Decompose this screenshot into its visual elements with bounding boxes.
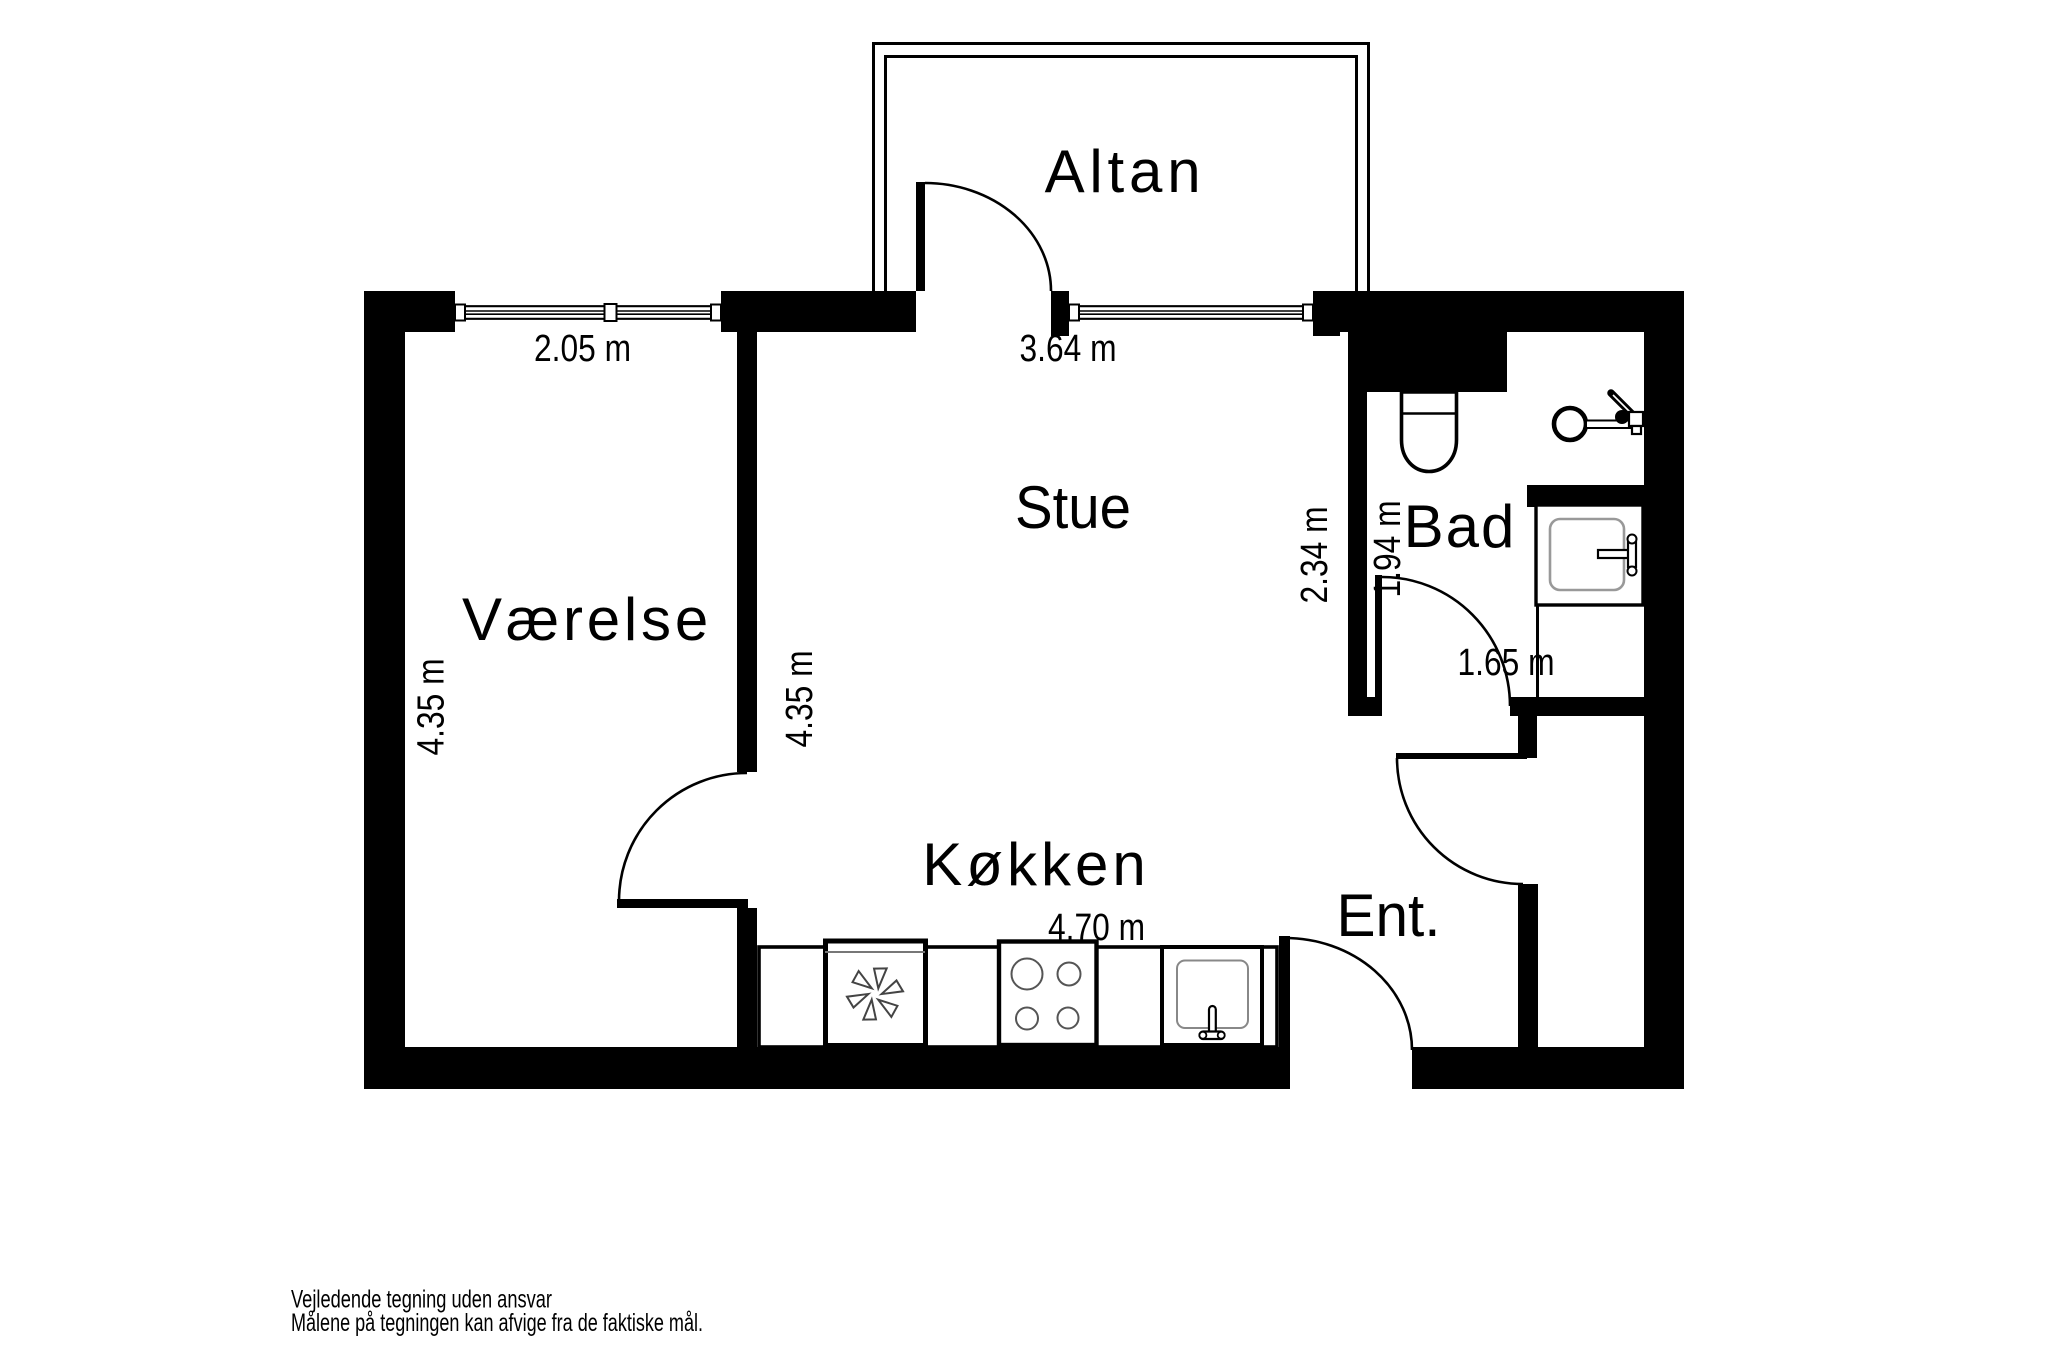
svg-text:2.05 m: 2.05 m [534,328,631,370]
svg-text:Målene på tegningen kan afvige: Målene på tegningen kan afvige fra de fa… [291,1309,703,1337]
svg-text:3.64 m: 3.64 m [1020,328,1117,370]
svg-text:1.94 m: 1.94 m [1367,501,1409,598]
svg-text:4.35 m: 4.35 m [411,659,453,756]
svg-text:4.70 m: 4.70 m [1048,907,1145,949]
svg-text:Altan: Altan [1045,138,1206,205]
svg-text:Værelse: Værelse [462,586,712,653]
svg-text:Ent.: Ent. [1337,882,1441,949]
svg-text:Bad: Bad [1404,493,1517,560]
svg-text:Køkken: Køkken [922,831,1149,898]
svg-text:2.34 m: 2.34 m [1294,507,1336,604]
svg-text:4.35 m: 4.35 m [779,651,821,748]
svg-text:1.65 m: 1.65 m [1458,642,1555,684]
svg-text:Stue: Stue [1015,474,1131,541]
